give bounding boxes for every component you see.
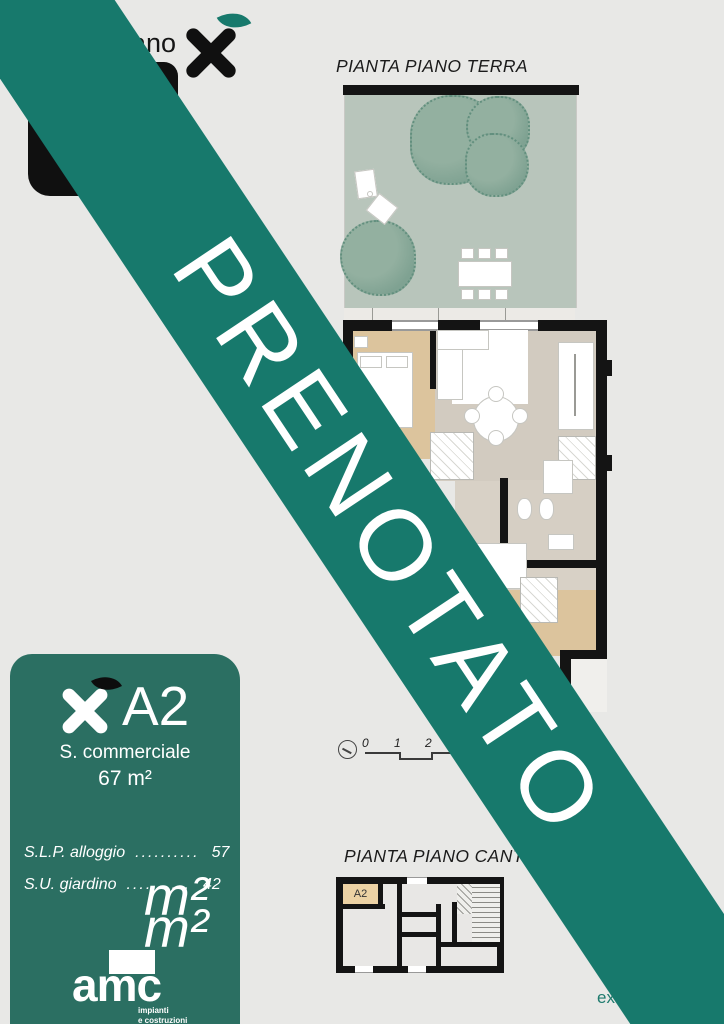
unit-x-leaf-icon (58, 684, 112, 738)
terra-plan-title: PIANTA PIANO TERRA (336, 56, 528, 77)
chair (488, 430, 504, 446)
spec-leader: .......... (127, 876, 191, 894)
scale-tick: 0 (362, 736, 369, 750)
poster: ano PIANTA PIANO TERRA (0, 0, 724, 1024)
washbasin (548, 534, 574, 550)
cantina-a2-room: A2 (343, 884, 378, 904)
amc-logo: amc impianti e costruzioni (72, 950, 212, 1020)
shower (543, 460, 573, 494)
unit-area-label: S. commerciale (10, 742, 240, 764)
tree-icon (465, 133, 529, 197)
unit-area-value: 67 m² (10, 767, 240, 791)
chair (464, 408, 480, 424)
garden-chair (495, 248, 508, 259)
unit-code: A2 (122, 674, 189, 738)
spec-label: S.L.P. alloggio (24, 844, 125, 862)
chair (488, 386, 504, 402)
toilet (517, 498, 532, 520)
garden-chair (495, 289, 508, 300)
spec-leader: .......... (135, 844, 199, 862)
spec-row-slp: S.L.P. alloggio .......... 57 m² (24, 844, 226, 862)
wardrobe (558, 342, 594, 430)
garden-chair (461, 289, 474, 300)
bidet (539, 498, 554, 520)
lounge-chair (354, 169, 378, 200)
garden-table (458, 261, 512, 287)
amc-roof-shape (109, 950, 155, 974)
brand-x-leaf-icon (180, 22, 242, 84)
scale-tick: 2 (425, 736, 432, 750)
scale-tick: 1 (394, 736, 401, 750)
unit-card: A2 S. commerciale 67 m² S.L.P. alloggio … (10, 654, 240, 1024)
sofa (437, 330, 489, 350)
spec-row-su: S.U. giardino .......... 42 m² (24, 876, 226, 894)
chair (512, 408, 528, 424)
staircase (472, 884, 500, 942)
spec-value: 42 (203, 876, 221, 894)
cantina-a2-label: A2 (354, 888, 367, 900)
amc-tagline: impianti e costruzioni (138, 1006, 187, 1024)
spec-label: S.U. giardino (24, 876, 117, 894)
spec-value: 57 (212, 844, 230, 862)
garden-chair (478, 248, 491, 259)
tree-icon (340, 220, 416, 296)
garden-chair (461, 248, 474, 259)
compass-icon (338, 740, 357, 759)
closet (430, 432, 474, 480)
garden-chair (478, 289, 491, 300)
